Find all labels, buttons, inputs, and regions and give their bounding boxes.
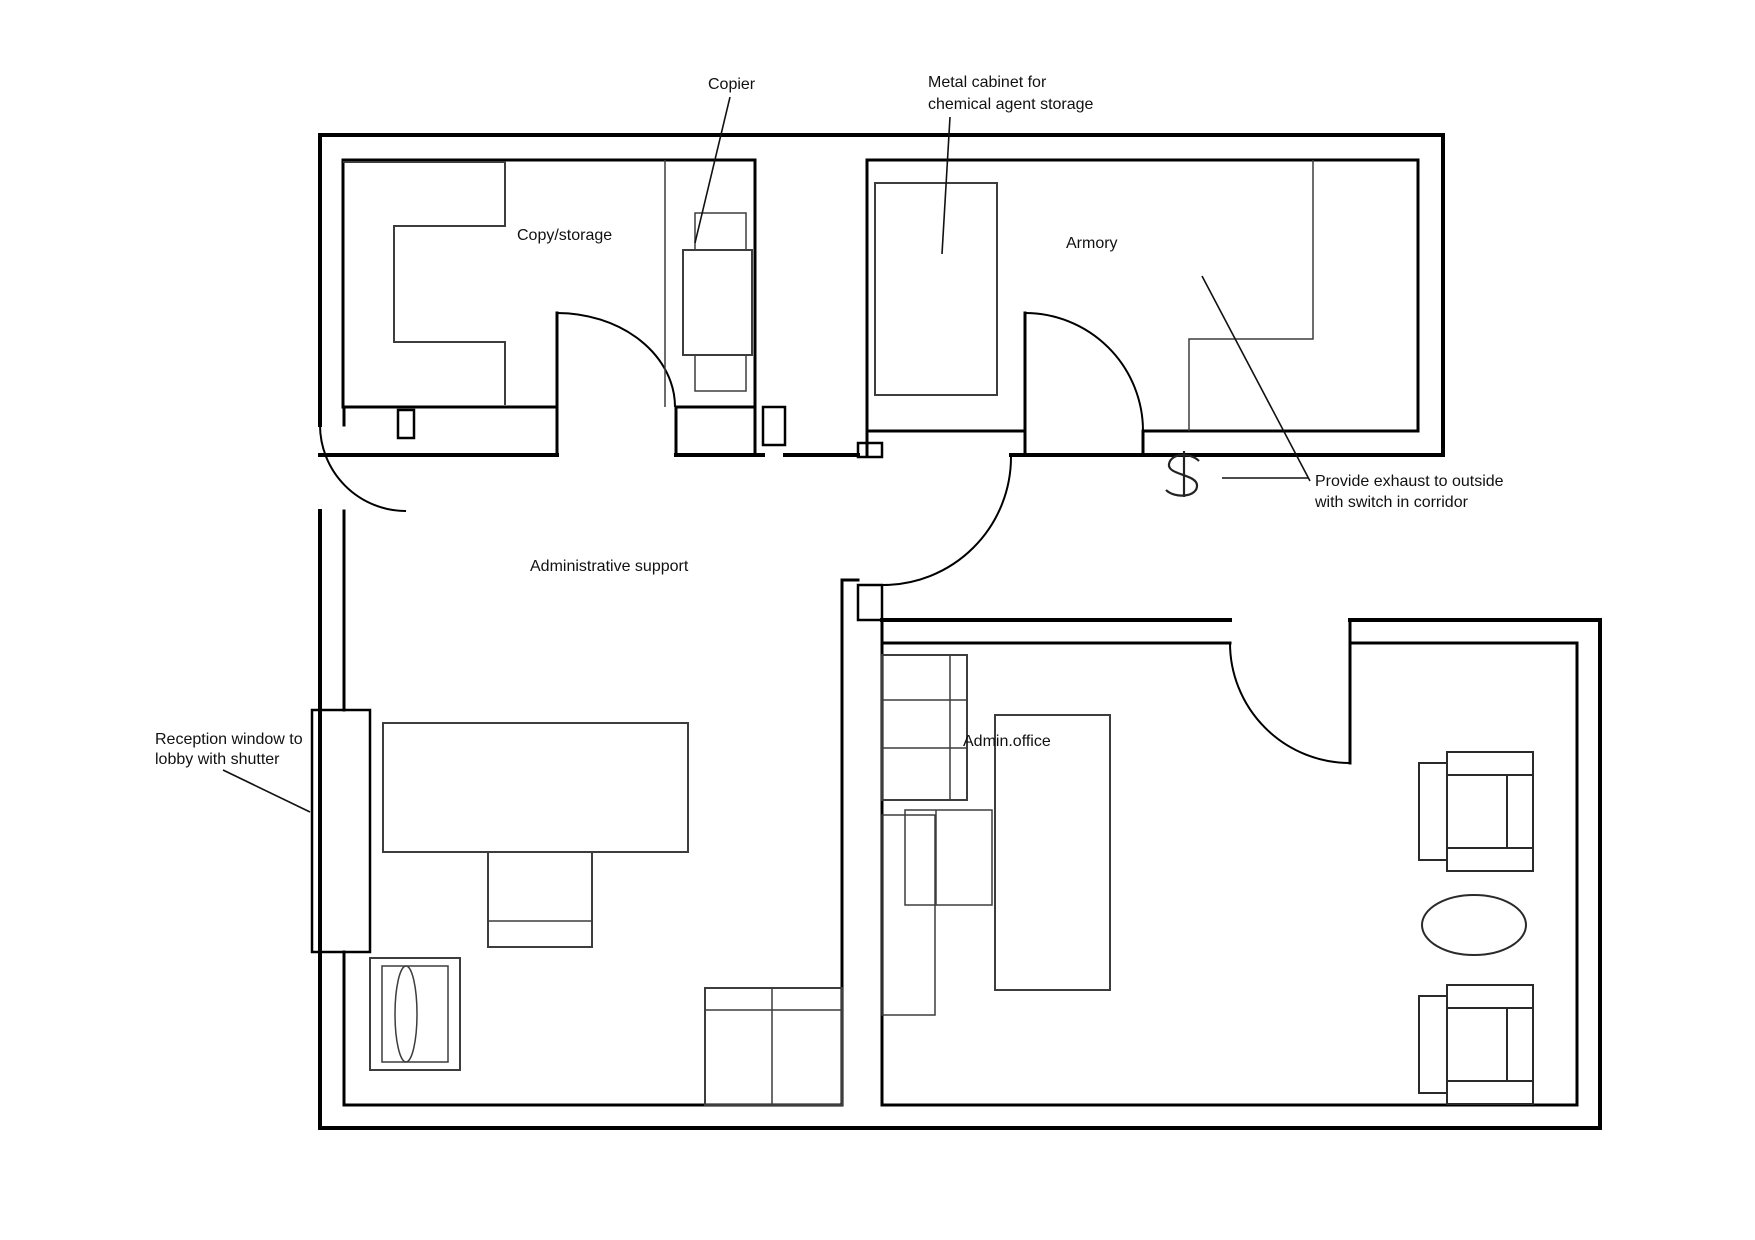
leader-metal-cabinet [942, 117, 950, 254]
annotation-reception-line2: lobby with shutter [155, 751, 280, 768]
plant-leaf [395, 966, 417, 1062]
annotation-metal-cabinet-line2: chemical agent storage [928, 96, 1094, 113]
armchair-armrest-bottom [1447, 1081, 1533, 1104]
leader-exhaust-diagonal [1202, 276, 1310, 481]
door-arc-admin-office [1230, 643, 1350, 763]
copier-tray-bottom [695, 355, 746, 391]
admin-office-chair [905, 810, 992, 905]
door-jamb-post-corridor [858, 443, 882, 457]
armchair-top [1419, 752, 1533, 871]
wall-interior [343, 160, 1577, 1105]
metal-cabinet-symbol [875, 183, 997, 395]
copy-room-counter [343, 162, 505, 405]
wall-exterior [320, 135, 1600, 1128]
armory-cage-partition [1189, 160, 1313, 431]
armchair-back [1507, 1008, 1533, 1081]
doors [320, 313, 1350, 763]
armchair-armrest-bottom [1447, 848, 1533, 871]
plant-stand [370, 958, 460, 1070]
bookshelf-shelves [882, 655, 967, 800]
door-jamb-post-lobby [398, 410, 414, 438]
armchair-seat [1419, 996, 1447, 1093]
admin-office-desk [995, 715, 1110, 990]
room-label-admin-support: Administrative support [530, 558, 689, 575]
room-label-armory: Armory [1066, 235, 1118, 252]
plant-box-inner [382, 966, 448, 1062]
wall-stub-mid-corridor [763, 407, 785, 445]
annotation-exhaust-line2: with switch in corridor [1314, 494, 1469, 511]
room-label-copy-storage: Copy/storage [517, 227, 612, 244]
labels: Copy/storage Armory Administrative suppo… [155, 74, 1504, 768]
exhaust-switch-symbol [1166, 451, 1199, 497]
couch-outline [705, 988, 842, 1105]
copier-tray-top [695, 213, 746, 250]
admin-support-couch [705, 988, 842, 1105]
room-label-admin-office: Admin.office [963, 733, 1051, 750]
armchair-back [1507, 775, 1533, 848]
armchair-seat [1419, 763, 1447, 860]
armchair-bottom [1419, 985, 1533, 1104]
copier-body [683, 250, 752, 355]
admin-office-credenza [882, 815, 935, 1015]
door-jamb-post-admin-office [858, 585, 882, 620]
annotation-exhaust-line1: Provide exhaust to outside [1315, 473, 1504, 490]
couch-lines [705, 988, 842, 1105]
door-arc-lobby-entrance [320, 425, 406, 511]
plant-box-outer [370, 958, 460, 1070]
admin-support-desk [383, 723, 688, 852]
chair-outline [488, 852, 592, 947]
armchair-armrest-top [1447, 752, 1533, 775]
bookshelf-outline [882, 655, 967, 800]
door-arc-corridor [883, 457, 1011, 585]
chair-outline [905, 810, 992, 905]
admin-office-bookshelf [882, 655, 967, 800]
copier-symbol [683, 213, 752, 391]
annotation-metal-cabinet-line1: Metal cabinet for [928, 74, 1047, 91]
walls [320, 135, 1600, 1128]
floor-plan-drawing: Copy/storage Armory Administrative suppo… [0, 0, 1755, 1240]
admin-support-chair [488, 852, 592, 947]
annotation-copier: Copier [708, 76, 756, 93]
switch-s-curve [1166, 455, 1199, 496]
door-arc-copy-storage [557, 313, 675, 407]
armchair-armrest-top [1447, 985, 1533, 1008]
door-arc-armory [1025, 313, 1143, 431]
annotation-reception-line1: Reception window to [155, 731, 303, 748]
leader-reception [223, 770, 310, 812]
floor-plan-page: Copy/storage Armory Administrative suppo… [0, 0, 1755, 1240]
round-side-table [1422, 895, 1526, 955]
leader-copier [695, 97, 730, 243]
